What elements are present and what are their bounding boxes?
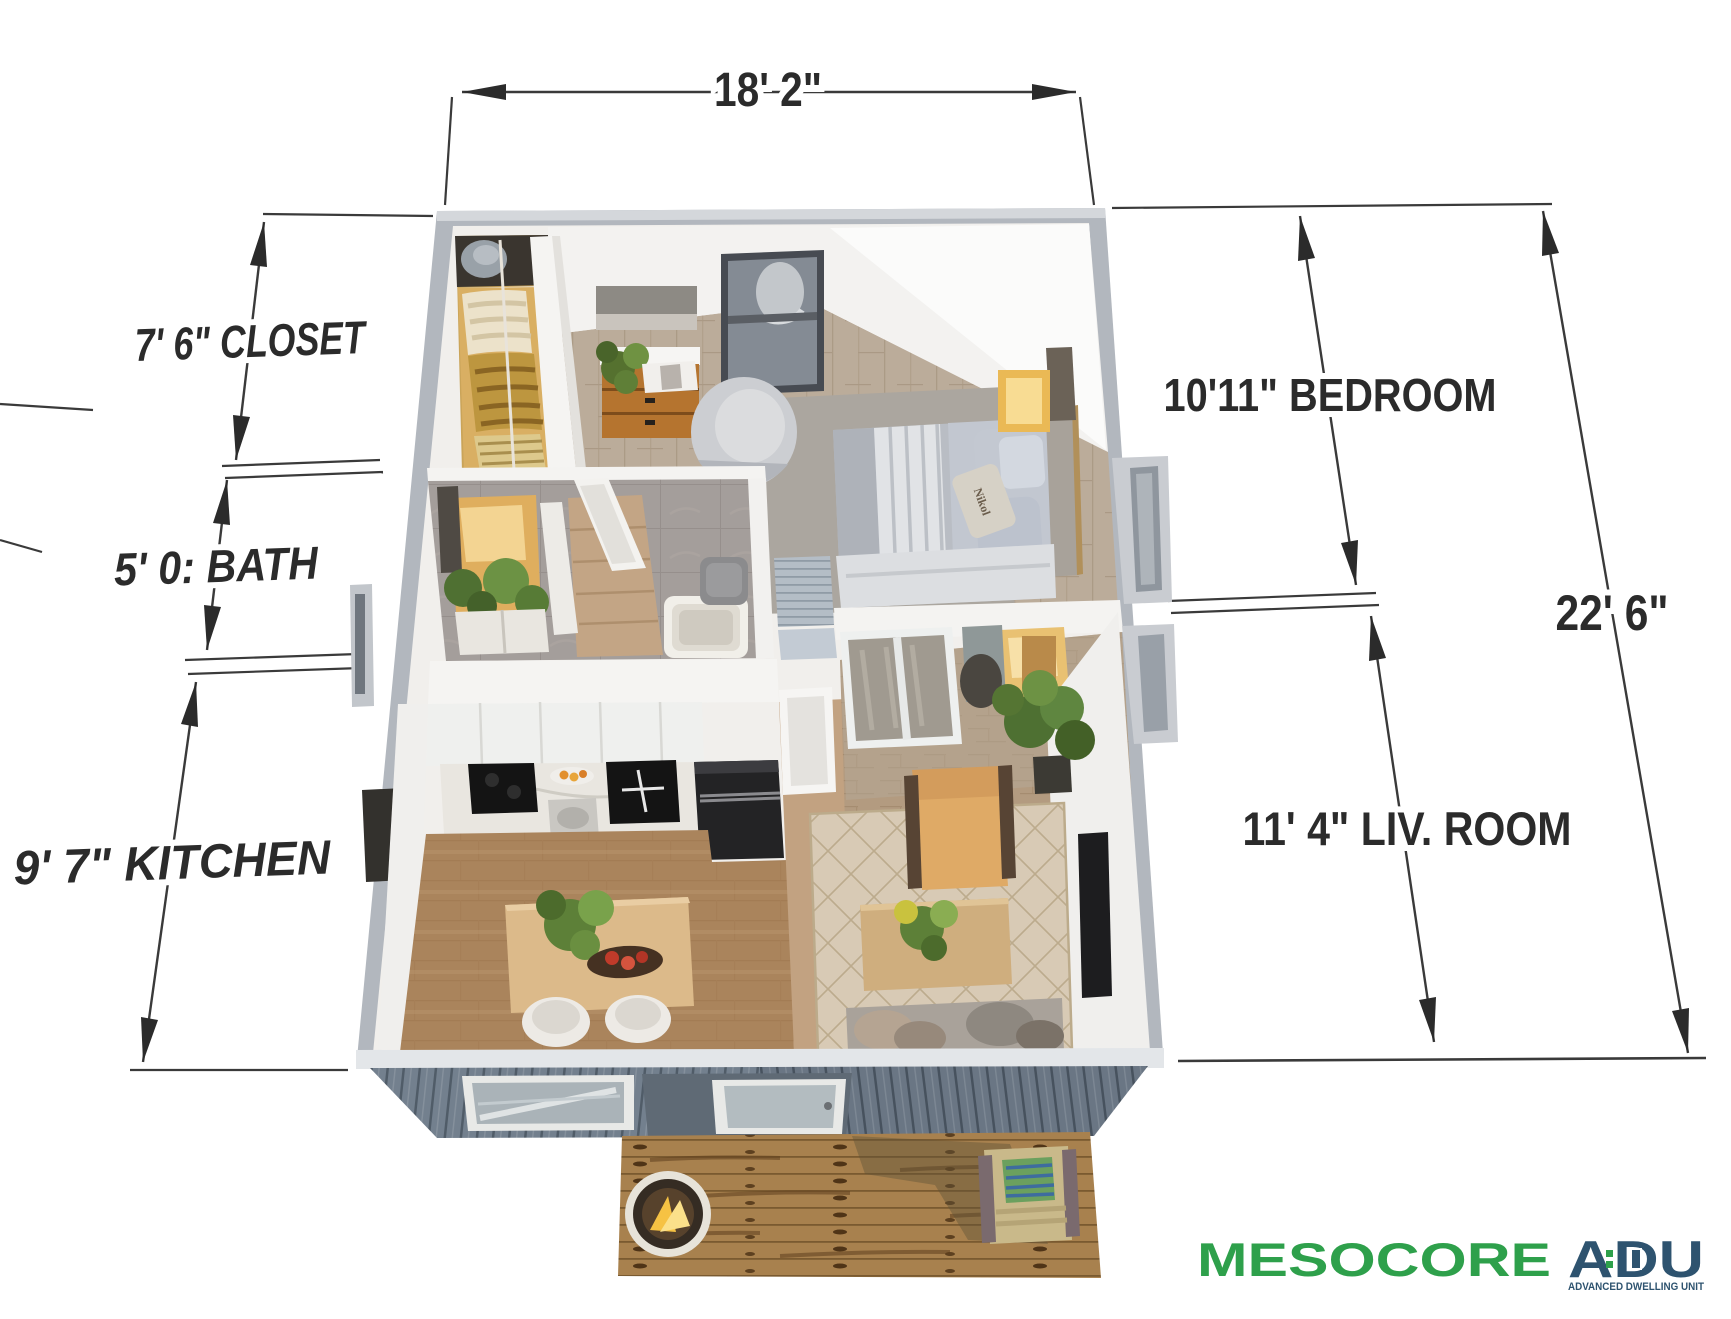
svg-text:9' 7" KITCHEN: 9' 7" KITCHEN (13, 831, 333, 895)
svg-text:22' 6": 22' 6" (1556, 585, 1669, 641)
svg-text:MESOCORE: MESOCORE (1197, 1233, 1551, 1286)
svg-text:10'11" BEDROOM: 10'11" BEDROOM (1164, 369, 1497, 421)
svg-text:11' 4" LIV. ROOM: 11' 4" LIV. ROOM (1243, 802, 1572, 855)
svg-text:18' 2": 18' 2" (714, 64, 822, 117)
svg-text:7' 6" CLOSET: 7' 6" CLOSET (134, 311, 369, 371)
svg-text:5' 0: BATH: 5' 0: BATH (113, 536, 319, 595)
svg-text:ADVANCED DWELLING UNIT: ADVANCED DWELLING UNIT (1568, 1281, 1704, 1293)
